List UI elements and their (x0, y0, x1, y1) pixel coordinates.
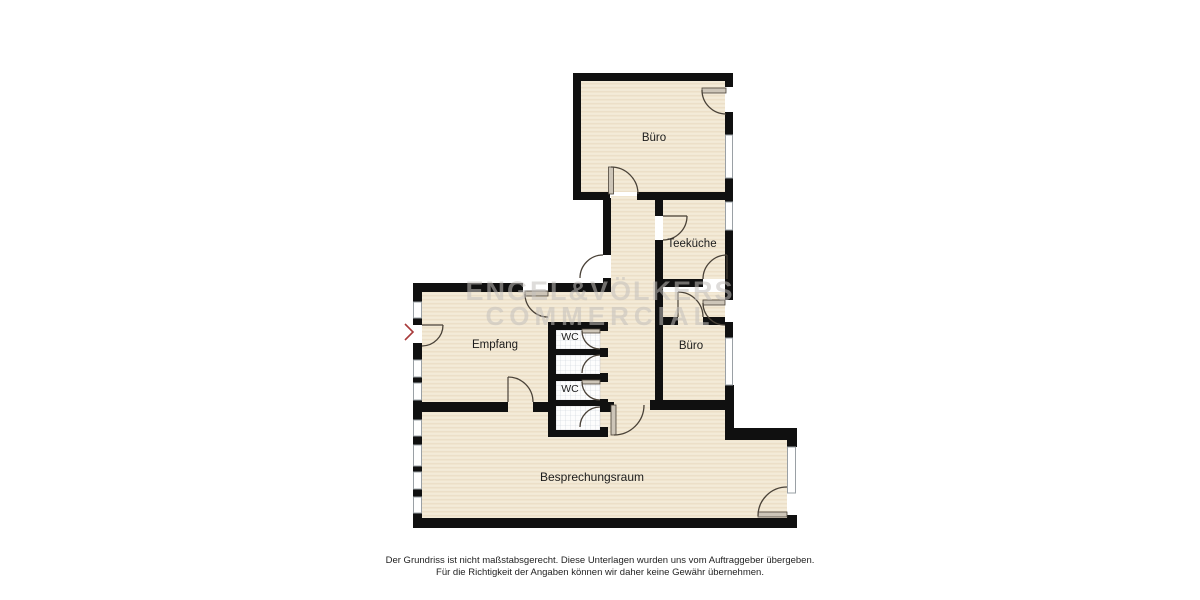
door-leaf-buero-top-right (702, 88, 726, 93)
window-besprechung-left-4 (414, 497, 422, 513)
watermark: ENGEL&VÖLKERS COMMERCIAL (465, 276, 734, 331)
label-empfang: Empfang (472, 339, 518, 351)
door-leaf-corridor-besprechung (611, 405, 616, 435)
disclaimer-line-1: Der Grundriss ist nicht maßstabsgerecht.… (386, 555, 815, 566)
watermark-line-2: COMMERCIAL (485, 301, 714, 331)
disclaimer: Der Grundriss ist nicht maßstabsgerecht.… (386, 555, 815, 578)
window-buero-right (726, 338, 733, 385)
window-teekueche-right (726, 202, 733, 230)
window-besprechung-left-2 (414, 445, 422, 466)
window-besprechung-left-3 (414, 472, 422, 489)
label-wc-top: WC (561, 331, 579, 343)
window-empfang-left-2 (414, 360, 422, 377)
window-buero-top-right (726, 135, 733, 178)
window-besprechung-right (788, 447, 796, 493)
wc-cell-4 (556, 406, 600, 430)
door-leaf-besprechung-right (758, 512, 787, 517)
floorplan-page: ENGEL&VÖLKERS COMMERCIAL Büro Teeküche E… (0, 0, 1200, 600)
window-besprechung-left-1 (414, 420, 422, 436)
window-empfang-left-3 (414, 383, 422, 400)
wc-cell-2 (556, 355, 600, 374)
label-teekueche: Teeküche (667, 238, 716, 250)
entrance-chevron-icon (405, 324, 413, 340)
floorplan-canvas: ENGEL&VÖLKERS COMMERCIAL Büro Teeküche E… (0, 0, 1200, 600)
window-empfang-left-1 (414, 302, 422, 318)
label-buero-right: Büro (679, 340, 703, 352)
door-leaf-wc-3 (582, 380, 600, 384)
door-arc-corridor-stairwell (580, 255, 603, 278)
label-besprechungsraum: Besprechungsraum (540, 470, 644, 484)
door-leaf-buero-top (609, 167, 614, 194)
label-buero-top: Büro (642, 132, 666, 144)
disclaimer-line-2: Für die Richtigkeit der Angaben können w… (436, 567, 764, 578)
label-wc-bottom: WC (561, 383, 579, 395)
